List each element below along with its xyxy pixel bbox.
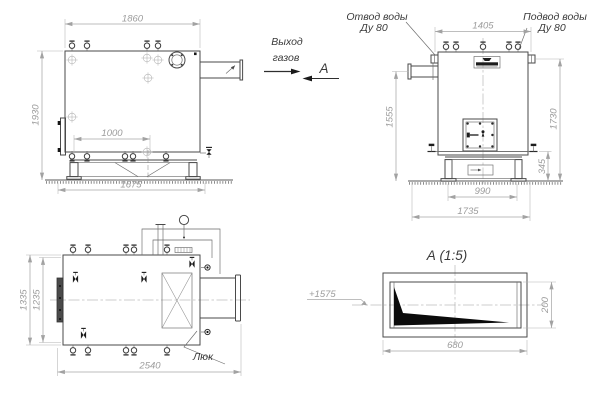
center-mark-icon [141,52,152,63]
dim-text: 345 [537,158,547,174]
hatch-label: Люк [184,331,225,364]
flow-arrow-icon [264,69,301,75]
water-outlet-flange [431,55,438,63]
detail-title: А (1:5) [426,248,468,263]
ground-hatch [408,181,563,183]
valve-dark-icon [81,328,86,338]
dim-text: 1860 [122,14,144,25]
valve-icon [69,41,74,51]
dim-text: 990 [475,186,492,197]
section-letter: А [318,61,328,76]
drawing-canvas: 1860 1930 1000 1675 Выход газов [0,0,600,400]
valve-icon [131,245,136,255]
dimension-1930: 1930 [31,51,64,180]
bolt-circle-icon [201,329,210,334]
dim-text: 200 [540,296,551,314]
center-mark-icon [141,146,152,157]
dimension-990: 990 [448,184,517,201]
detail-view-A: А (1:5) +1575 680 200 [307,248,556,355]
dim-text: 1930 [31,104,42,126]
dimension-680: 680 [383,340,527,355]
anchor-bolt-icon [428,144,436,152]
elevation-text: +1575 [309,289,336,300]
bolt-circle-icon [201,265,210,270]
valve-dark-icon [141,272,146,282]
elevation-mark: +1575 [307,289,367,305]
anchor-bolt-icon [530,144,538,152]
dim-text: 1335 [19,289,30,311]
valve-dark-icon [73,272,78,282]
center-mark-icon [66,54,77,65]
dim-text: 680 [447,340,464,351]
valve-icon [123,345,128,355]
left-flange-plate [57,278,63,322]
center-mark-icon [66,111,77,122]
valve-icon [144,41,149,51]
valve-icon [84,41,89,51]
center-mark-icon [152,54,163,65]
side-view: Отвод воды Ду 80 Подвод воды Ду 80 1405 … [346,11,587,221]
water-supply-flange [528,55,535,63]
gas-duct-stub [408,64,438,81]
gas-exit-text-1: Выход [271,36,303,48]
dim-text: 1555 [385,106,396,128]
dimension-345: 345 [537,152,552,182]
gas-duct-plan [200,275,241,321]
gas-exit-text-2: газов [273,52,300,64]
valve-icon [70,345,75,355]
weld-wedge [394,287,509,326]
dim-text: 2540 [138,361,161,372]
fitting-dot [194,53,197,56]
valve-dark-icon [189,257,194,267]
dimension-1000: 1000 [74,128,150,154]
section-marker-A: А [303,61,340,81]
dim-text: 1000 [101,128,123,139]
valve-icon [480,42,485,52]
access-door [463,119,497,151]
valve-icon [131,345,136,355]
boiler-technical-drawing: 1860 1930 1000 1675 Выход газов [0,0,600,400]
hatch-area [162,273,192,328]
dim-text: 1735 [457,206,479,217]
gas-duct [200,60,243,80]
valve-icon [85,245,90,255]
water-outlet-text-2: Ду 80 [359,22,388,34]
valve-icon [164,245,169,255]
top-flange-bar [175,248,192,253]
valve-icon [506,42,511,52]
valve-icon [453,42,458,52]
hatch-text: Люк [192,351,214,363]
dim-text: 1730 [549,108,560,130]
valve-icon [70,245,75,255]
side-door [58,118,66,155]
valve-icon [155,41,160,51]
gas-exit-label: Выход газов [264,36,303,74]
drain-valve-icon [200,147,212,158]
flange-circle [169,52,185,68]
dimension-1555: 1555 [385,72,410,182]
door-handle [467,133,470,138]
water-outlet-label: Отвод воды Ду 80 [346,11,435,55]
plan-view: Люк 1335 1235 2540 [19,215,251,376]
water-supply-label: Подвод воды Ду 80 [519,11,587,49]
dim-text: 1675 [120,180,142,191]
nameplate [474,57,500,69]
valve-icon [443,42,448,52]
center-mark-icon [142,72,153,83]
valve-icon [164,345,169,355]
valve-icon [85,345,90,355]
dim-text: 1405 [472,21,494,32]
base-frame [441,157,526,181]
dimension-1860: 1860 [65,14,200,49]
dimension-1735: 1735 [412,184,530,221]
water-supply-text-2: Ду 80 [537,22,566,34]
valve-icon [123,245,128,255]
front-view: 1860 1930 1000 1675 [31,14,243,195]
view-direction-arrow-icon [303,76,340,82]
dim-text: 1235 [32,289,43,311]
